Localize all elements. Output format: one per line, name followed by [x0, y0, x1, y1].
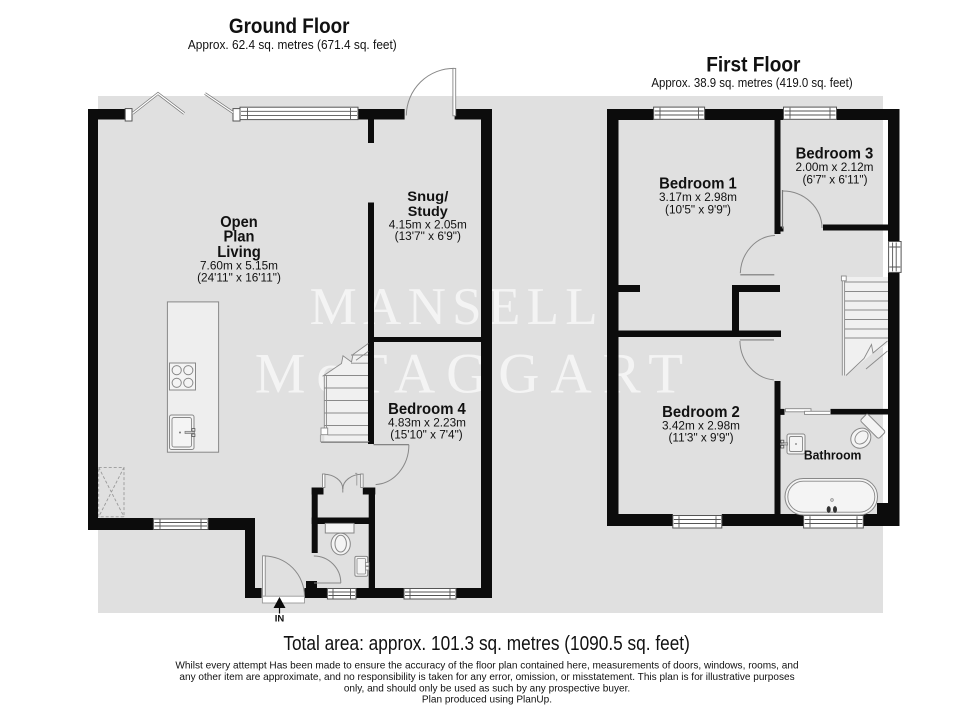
svg-text:(24'11" x 16'11"): (24'11" x 16'11") — [197, 271, 281, 285]
svg-text:only, and should only be used: only, and should only be used as such by… — [344, 684, 630, 695]
svg-text:(15'10" x 7'4"): (15'10" x 7'4") — [390, 428, 462, 442]
svg-text:McTAGGART: McTAGGART — [255, 343, 694, 406]
svg-text:Study: Study — [408, 203, 448, 219]
svg-text:Total area: approx. 101.3 sq.: Total area: approx. 101.3 sq. metres (10… — [283, 633, 690, 655]
svg-text:(11'3" x 9'9"): (11'3" x 9'9") — [669, 431, 734, 445]
svg-text:(10'5" x 9'9"): (10'5" x 9'9") — [665, 202, 731, 216]
svg-text:Approx. 62.4 sq. metres (671.4: Approx. 62.4 sq. metres (671.4 sq. feet) — [188, 37, 397, 52]
svg-text:Bathroom: Bathroom — [804, 448, 862, 463]
svg-text:Approx. 38.9 sq. metres (419.0: Approx. 38.9 sq. metres (419.0 sq. feet) — [651, 75, 852, 90]
svg-text:(6'7" x 6'11"): (6'7" x 6'11") — [803, 173, 868, 187]
svg-text:Whilst every attempt Has been: Whilst every attempt Has been made to en… — [175, 661, 798, 672]
svg-text:MANSELL: MANSELL — [310, 278, 604, 336]
svg-text:IN: IN — [275, 614, 285, 625]
svg-text:Plan produced using PlanUp.: Plan produced using PlanUp. — [422, 695, 552, 706]
svg-text:Ground Floor: Ground Floor — [229, 14, 350, 38]
svg-text:any other item are approximate: any other item are approximate, and no r… — [179, 672, 794, 683]
svg-text:First Floor: First Floor — [706, 53, 801, 77]
svg-text:Snug/: Snug/ — [407, 188, 448, 204]
svg-text:(13'7" x 6'9"): (13'7" x 6'9") — [395, 229, 461, 243]
